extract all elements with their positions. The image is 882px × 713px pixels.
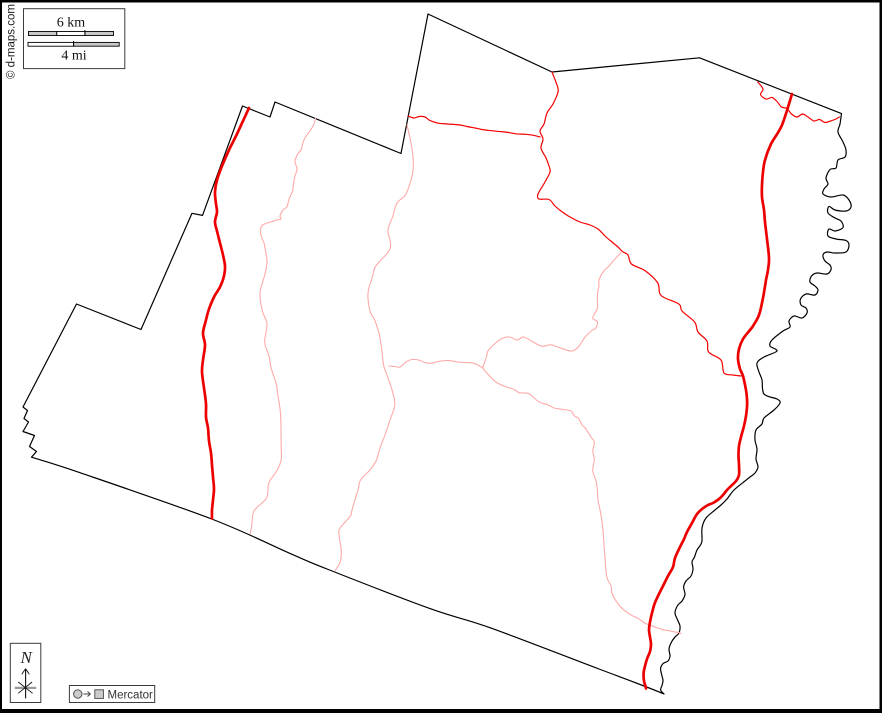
svg-text:Mercator: Mercator — [108, 689, 154, 701]
svg-text:N: N — [20, 648, 34, 667]
svg-text:4 mi: 4 mi — [61, 49, 86, 64]
svg-text:© d-maps.com: © d-maps.com — [6, 4, 18, 79]
svg-text:6 km: 6 km — [57, 16, 86, 31]
